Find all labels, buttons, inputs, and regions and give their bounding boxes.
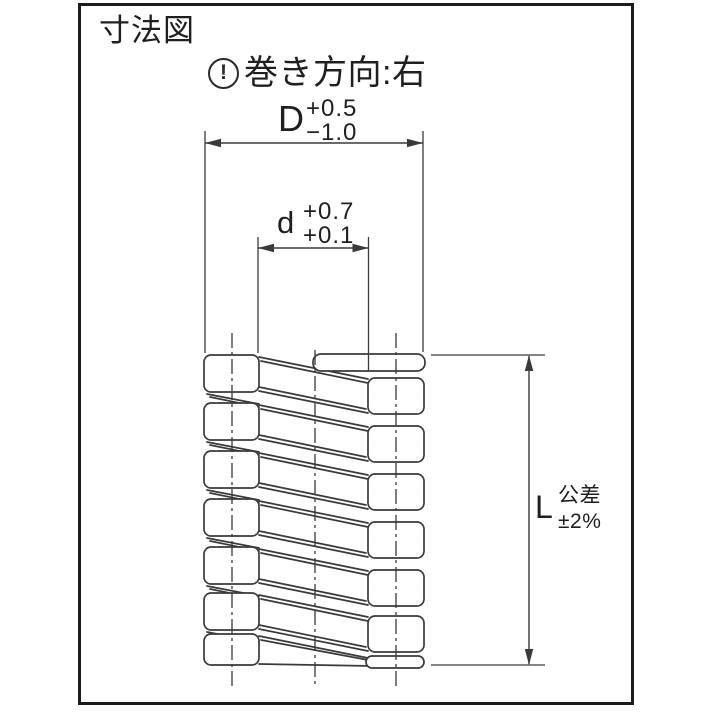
dimension-D-tol-upper: +0.5: [306, 97, 357, 121]
dimension-L-tol-value: ±2%: [558, 509, 601, 535]
dimension-d-tolerance: +0.7 +0.1: [303, 200, 354, 248]
dimension-L-tolerance: 公差 ±2%: [558, 483, 601, 535]
dimension-d-tol-lower: +0.1: [303, 224, 354, 248]
dimension-d-tol-upper: +0.7: [303, 200, 354, 224]
dimension-figure: 寸法図 ! 巻き方向:右 D +0.5 −1.0 d +0.7 +0.1 L 公…: [0, 0, 713, 713]
dimension-D-symbol: D: [278, 101, 304, 137]
dimension-L-symbol: L: [535, 491, 553, 523]
dimension-D-tol-lower: −1.0: [306, 121, 357, 145]
dimension-d-symbol: d: [277, 207, 294, 238]
dimension-D-tolerance: +0.5 −1.0: [306, 97, 357, 145]
dimension-L-tol-label: 公差: [558, 483, 601, 509]
